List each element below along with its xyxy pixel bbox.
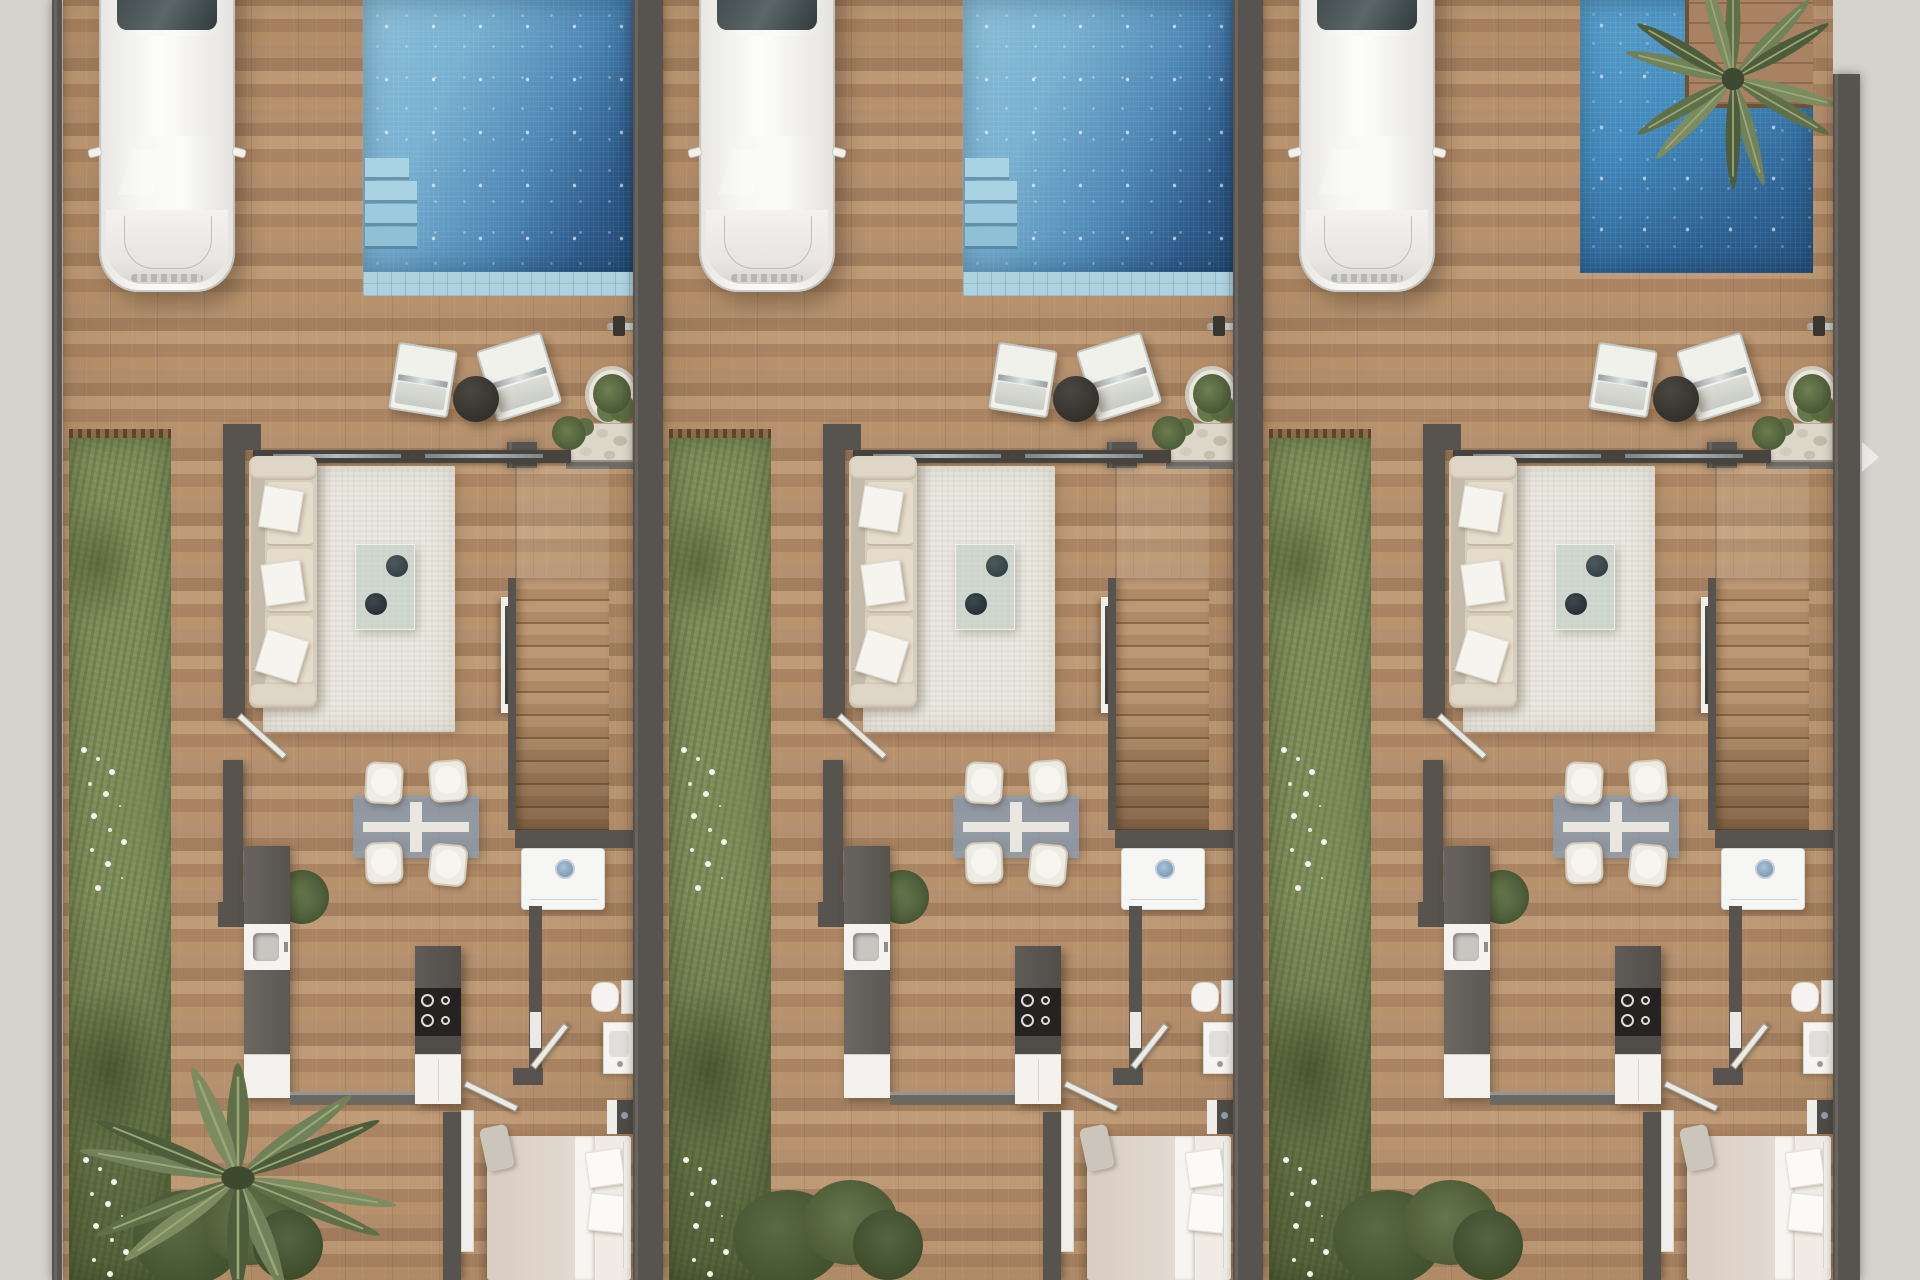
sofa-pillow	[258, 485, 304, 533]
double-bed	[487, 1136, 631, 1280]
pool-steps	[365, 158, 417, 250]
kitchen-glass-rail	[1490, 1092, 1617, 1105]
car-mirror-left	[1287, 146, 1303, 158]
sofa-pillow	[1458, 485, 1504, 533]
coffee-table	[1555, 544, 1615, 630]
staircase	[1116, 578, 1209, 830]
window-glass-panel	[1426, 772, 1438, 854]
bedroom-wall	[1043, 1112, 1061, 1280]
kitchen-cabinet	[844, 1054, 890, 1098]
stair-landing	[515, 466, 609, 578]
headboard	[1223, 1142, 1231, 1268]
sofa-pillow	[260, 559, 305, 606]
wardrobe	[1661, 1110, 1674, 1252]
west-wall-upper	[823, 424, 845, 718]
staircase	[1716, 578, 1809, 830]
car-mirror-left	[87, 146, 103, 158]
wall-shelf	[1207, 1100, 1233, 1134]
car-front-grill	[1331, 274, 1403, 282]
toilet	[1191, 980, 1235, 1014]
wall-white-face	[1730, 1012, 1741, 1048]
bedroom-wall	[1643, 1112, 1661, 1280]
party-wall	[633, 0, 663, 1280]
kitchen-cabinet	[1444, 1054, 1490, 1098]
west-wall-upper	[223, 424, 245, 718]
burner	[1621, 1014, 1634, 1027]
washing-machine	[1121, 848, 1205, 910]
swimming-pool	[963, 0, 1233, 296]
toilet	[1791, 980, 1835, 1014]
sofa-armrest	[849, 456, 917, 480]
bathroom-vanity	[1803, 1022, 1835, 1074]
dining-chair	[428, 759, 469, 804]
unit-3	[1263, 0, 1833, 1280]
laundry-wall	[515, 830, 633, 848]
car-roof	[1312, 36, 1422, 136]
pool-coping-tiles	[363, 272, 633, 296]
kitchen-sink	[244, 924, 290, 970]
palm-tree	[1608, 0, 1858, 204]
table-vase	[1586, 555, 1608, 577]
stair-landing	[1115, 466, 1209, 578]
cooktop	[1615, 988, 1661, 1036]
party-wall	[1233, 0, 1263, 1280]
pool-steps	[965, 158, 1017, 250]
kitchen-sink	[1444, 924, 1490, 970]
dining-chair	[1564, 841, 1603, 884]
burner	[1041, 1016, 1050, 1025]
cooktop	[1015, 988, 1061, 1036]
wall-shelf	[1807, 1100, 1833, 1134]
car	[99, 0, 235, 292]
headboard	[623, 1142, 631, 1268]
wall-white-face	[1130, 1012, 1141, 1048]
flower-cluster	[63, 735, 133, 905]
dining-chair	[964, 761, 1004, 805]
boundary-wall-left	[52, 0, 62, 1280]
flower-cluster	[1263, 735, 1333, 905]
palm-tree	[53, 1048, 423, 1280]
sofa-armrest	[1449, 684, 1517, 708]
sofa	[1449, 456, 1517, 708]
table-vase	[965, 593, 987, 615]
bed-pillow	[1787, 1192, 1827, 1234]
car-rear-window	[1317, 0, 1417, 30]
bedroom-wall	[443, 1112, 461, 1280]
double-bed	[1087, 1136, 1231, 1280]
terrace-plant-pot	[1185, 366, 1239, 424]
flower-cluster	[665, 1145, 735, 1280]
island-cabinet	[1015, 1054, 1061, 1104]
car	[1299, 0, 1435, 292]
laundry-wall	[1715, 830, 1833, 848]
bedroom-wall-stub	[1113, 1068, 1143, 1085]
bed-pillow	[1185, 1148, 1226, 1189]
sofa-armrest	[249, 684, 317, 708]
bed-pillow	[1187, 1192, 1227, 1234]
terrace-plant-pot	[1785, 366, 1839, 424]
car-hood	[106, 210, 228, 284]
flower-cluster	[663, 735, 733, 905]
unit-2	[663, 0, 1233, 1280]
car-roof	[712, 36, 822, 136]
boundary-wall-right	[1833, 74, 1860, 1280]
car-windshield	[108, 142, 226, 206]
dining-chair	[427, 842, 469, 887]
double-bed	[1687, 1136, 1831, 1280]
car-roof	[112, 36, 222, 136]
kitchen-glass-rail	[890, 1092, 1017, 1105]
stair-wall	[508, 578, 516, 830]
kitchen-island	[1615, 946, 1661, 1104]
bed-pillow	[587, 1192, 627, 1234]
staircase	[516, 578, 609, 830]
burner	[1641, 1016, 1650, 1025]
burner	[1021, 1014, 1034, 1027]
car-windshield	[708, 142, 826, 206]
west-wall-upper	[1423, 424, 1445, 718]
swimming-pool	[363, 0, 633, 296]
next-image-arrow-icon[interactable]	[1862, 442, 1879, 472]
coffee-table	[955, 544, 1015, 630]
window-glass-panel	[226, 772, 238, 854]
sofa	[249, 456, 317, 708]
sofa-armrest	[849, 684, 917, 708]
unit-1	[63, 0, 633, 1280]
wall-white-face	[530, 1012, 541, 1048]
dining-chair	[1028, 759, 1069, 804]
car-windshield	[1308, 142, 1426, 206]
floorplan-canvas	[0, 0, 1920, 1280]
car-hood	[1306, 210, 1428, 284]
burner	[441, 996, 450, 1005]
sofa	[849, 456, 917, 708]
kitchen-island	[1015, 946, 1061, 1104]
sofa-armrest	[249, 456, 317, 480]
units-layer	[0, 0, 1920, 1280]
dining-chair	[1627, 842, 1669, 887]
sofa-pillow	[858, 485, 904, 533]
window-glass-panel	[826, 772, 838, 854]
car-front-grill	[731, 274, 803, 282]
terrace-side-table	[453, 376, 499, 422]
terrace-plant-pot	[585, 366, 639, 424]
burner	[1041, 996, 1050, 1005]
coffee-table	[355, 544, 415, 630]
washing-machine	[1721, 848, 1805, 910]
kitchen-counter	[1444, 846, 1490, 1098]
stair-wall	[1708, 578, 1716, 830]
burner	[421, 994, 434, 1007]
car	[699, 0, 835, 292]
dining-chair	[1027, 842, 1069, 887]
terrace-side-table	[1653, 376, 1699, 422]
washing-machine	[521, 848, 605, 910]
burner	[1621, 994, 1634, 1007]
table-vase	[365, 593, 387, 615]
dining-chair	[964, 841, 1003, 884]
lounge-chair	[388, 342, 458, 419]
bedroom-wall-stub	[513, 1068, 543, 1085]
island-cabinet	[1615, 1054, 1661, 1104]
sofa-pillow	[1460, 559, 1505, 606]
burner	[421, 1014, 434, 1027]
kitchen-sink	[844, 924, 890, 970]
garden-shrubs	[733, 1180, 923, 1280]
terrace-side-table	[1053, 376, 1099, 422]
bed-pillow	[585, 1148, 626, 1189]
table-vase	[986, 555, 1008, 577]
bathroom-vanity	[1203, 1022, 1235, 1074]
wardrobe	[461, 1110, 474, 1252]
dining-chair	[364, 841, 403, 884]
bedroom-wall-stub	[1713, 1068, 1743, 1085]
garden-shrubs	[1333, 1180, 1523, 1280]
sofa-armrest	[1449, 456, 1517, 480]
dining-chair	[1564, 761, 1604, 805]
wall-shelf	[607, 1100, 633, 1134]
lounge-chair	[988, 342, 1058, 419]
car-hood	[706, 210, 828, 284]
kitchen-counter	[844, 846, 890, 1098]
car-rear-window	[117, 0, 217, 30]
car-front-grill	[131, 274, 203, 282]
sofa-pillow	[860, 559, 905, 606]
table-vase	[386, 555, 408, 577]
table-vase	[1565, 593, 1587, 615]
flower-cluster	[1265, 1145, 1335, 1280]
bed-pillow	[1785, 1148, 1826, 1189]
burner	[1021, 994, 1034, 1007]
laundry-wall	[1115, 830, 1233, 848]
stair-landing	[1715, 466, 1809, 578]
dining-chair	[1628, 759, 1669, 804]
bathroom-vanity	[603, 1022, 635, 1074]
burner	[441, 1016, 450, 1025]
wardrobe	[1061, 1110, 1074, 1252]
car-mirror-left	[687, 146, 703, 158]
dining-chair	[364, 761, 404, 805]
pool-coping-tiles	[963, 272, 1233, 296]
headboard	[1823, 1142, 1831, 1268]
swimming-pool	[1580, 0, 1813, 273]
stair-wall	[1108, 578, 1116, 830]
lounge-chair	[1588, 342, 1658, 419]
burner	[1641, 996, 1650, 1005]
toilet	[591, 980, 635, 1014]
cooktop	[415, 988, 461, 1036]
car-rear-window	[717, 0, 817, 30]
